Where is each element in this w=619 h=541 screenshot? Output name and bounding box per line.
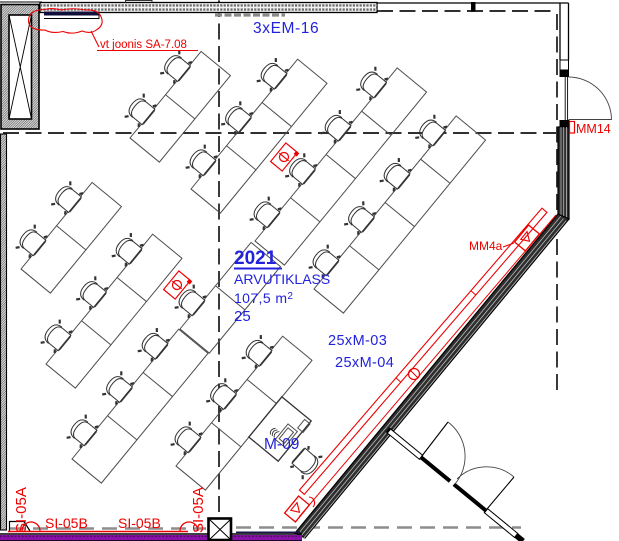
svg-text:SI-05B: SI-05B [118,515,161,531]
svg-text:SI-05A: SI-05A [190,487,207,533]
svg-text:3xEM-16: 3xEM-16 [253,20,319,37]
svg-text:MM14: MM14 [576,122,611,136]
svg-text:ARVUTIKLASS: ARVUTIKLASS [234,271,330,287]
svg-text:2021: 2021 [234,248,277,269]
svg-text:25: 25 [234,308,251,325]
svg-text:SI-05A: SI-05A [13,487,30,533]
svg-text:M-09: M-09 [264,436,299,453]
svg-text:107,5 m2: 107,5 m2 [234,290,293,306]
svg-text:SI-05B: SI-05B [45,515,88,531]
svg-text:MM4a: MM4a [469,239,503,253]
svg-text:25xM-03: 25xM-03 [328,333,387,349]
svg-text:vt joonis SA-7.08: vt joonis SA-7.08 [100,39,187,51]
svg-text:25xM-04: 25xM-04 [335,355,394,371]
